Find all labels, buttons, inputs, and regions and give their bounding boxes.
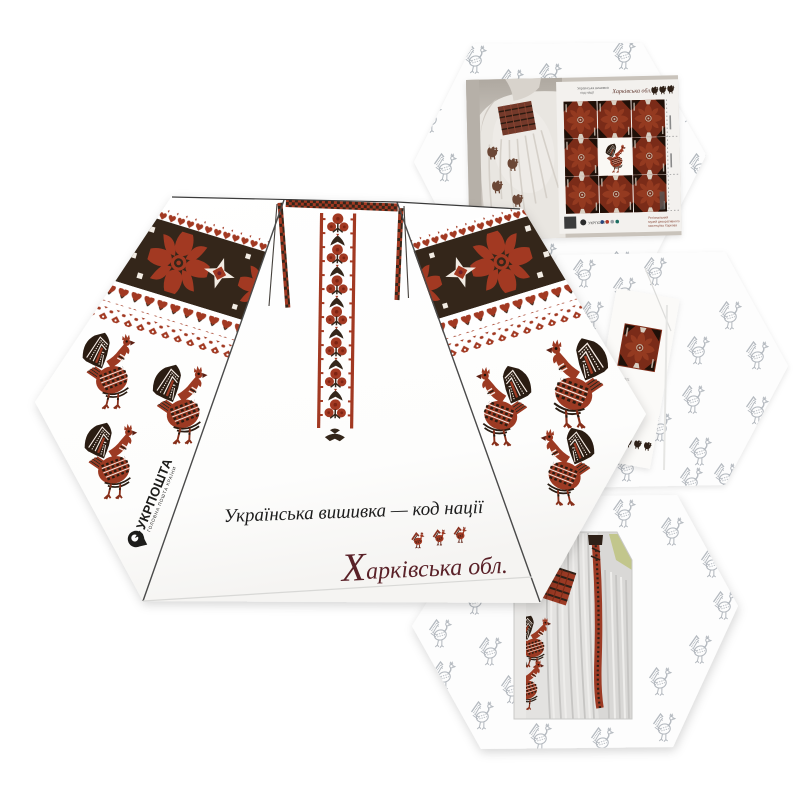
- svg-text:Харківська обл.: Харківська обл.: [611, 87, 651, 95]
- svg-text:мистецтва Харкова: мистецтва Харкова: [648, 223, 677, 228]
- svg-text:код нації: код нації: [580, 90, 594, 94]
